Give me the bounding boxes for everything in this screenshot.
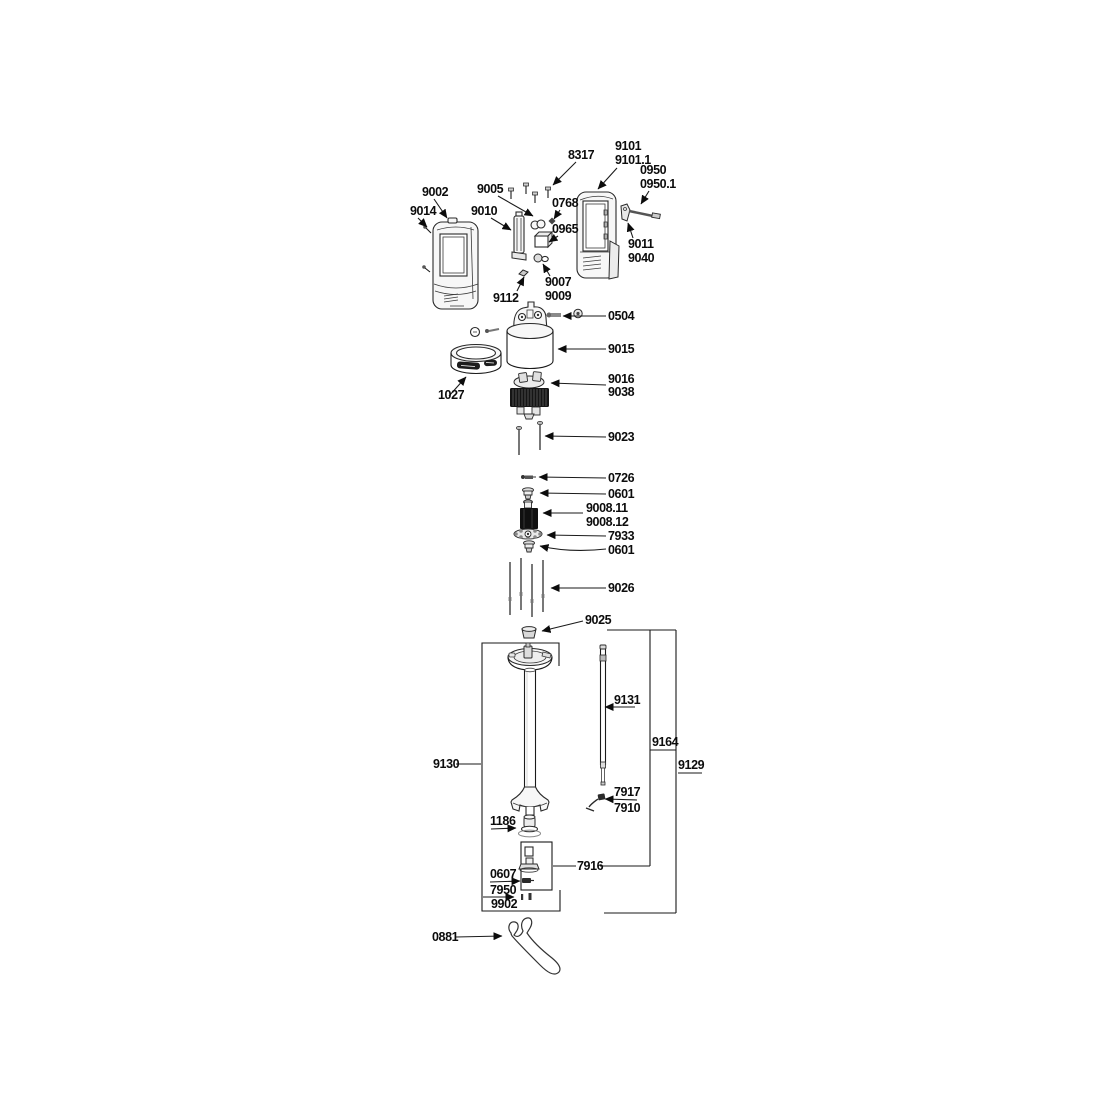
part-label-9008-12: 9008.12 xyxy=(586,515,629,529)
diagram-canvas: 8317 9101 9101.1 0950 0950.1 9002 9014 9… xyxy=(0,0,1100,1100)
part-label-9007: 9007 xyxy=(545,275,572,289)
part-label-9011: 9011 xyxy=(628,237,654,251)
part-label-9025: 9025 xyxy=(585,613,612,627)
part-label-9040: 9040 xyxy=(628,251,655,265)
part-label-0768: 0768 xyxy=(552,196,579,210)
part-label-9129: 9129 xyxy=(678,758,705,772)
part-label-0607: 0607 xyxy=(490,867,517,881)
part-label-9902: 9902 xyxy=(491,897,518,911)
part-label-9131: 9131 xyxy=(614,693,641,707)
part-label-9002: 9002 xyxy=(422,185,449,199)
part-label-9016: 9016 xyxy=(608,372,635,386)
background xyxy=(0,0,1100,1100)
part-label-7933: 7933 xyxy=(608,529,635,543)
part-label-0950: 0950 xyxy=(640,163,667,177)
part-label-7950: 7950 xyxy=(490,883,517,897)
part-label-0965: 0965 xyxy=(552,222,579,236)
part-drawing-roller-9005 xyxy=(531,220,545,229)
exploded-parts-diagram: 8317 9101 9101.1 0950 0950.1 9002 9014 9… xyxy=(0,0,1100,1100)
part-label-9038: 9038 xyxy=(608,385,635,399)
part-label-9026: 9026 xyxy=(608,581,635,595)
part-label-0601-bottom: 0601 xyxy=(608,543,635,557)
part-label-7917: 7917 xyxy=(614,785,641,799)
part-label-9005: 9005 xyxy=(477,182,504,196)
part-drawing-right-housing-9101 xyxy=(577,192,619,279)
part-drawing-left-housing-9002 xyxy=(433,218,478,309)
part-label-0726: 0726 xyxy=(608,471,635,485)
part-label-9112: 9112 xyxy=(493,291,519,305)
part-label-1027: 1027 xyxy=(438,388,465,402)
part-label-8317: 8317 xyxy=(568,148,595,162)
part-label-9015: 9015 xyxy=(608,342,635,356)
part-drawing-bracket-9010 xyxy=(512,212,526,260)
part-label-9101: 9101 xyxy=(615,139,642,153)
part-label-9010: 9010 xyxy=(471,204,498,218)
part-label-7910: 7910 xyxy=(614,801,641,815)
part-label-0601-top: 0601 xyxy=(608,487,635,501)
part-label-0504: 0504 xyxy=(608,309,635,323)
part-label-1186: 1186 xyxy=(490,814,516,828)
part-drawing-box-0965 xyxy=(535,232,552,247)
part-label-7916: 7916 xyxy=(577,859,604,873)
part-label-9164: 9164 xyxy=(652,735,679,749)
part-drawing-armature-9008 xyxy=(520,508,538,529)
part-label-0881: 0881 xyxy=(432,930,459,944)
part-label-9023: 9023 xyxy=(608,430,635,444)
part-label-9008-11: 9008.11 xyxy=(586,501,628,515)
part-label-0950-1: 0950.1 xyxy=(640,177,676,191)
part-label-9014: 9014 xyxy=(410,204,437,218)
part-label-9009: 9009 xyxy=(545,289,572,303)
part-label-9130: 9130 xyxy=(433,757,460,771)
part-drawing-cup-9025 xyxy=(522,627,536,638)
